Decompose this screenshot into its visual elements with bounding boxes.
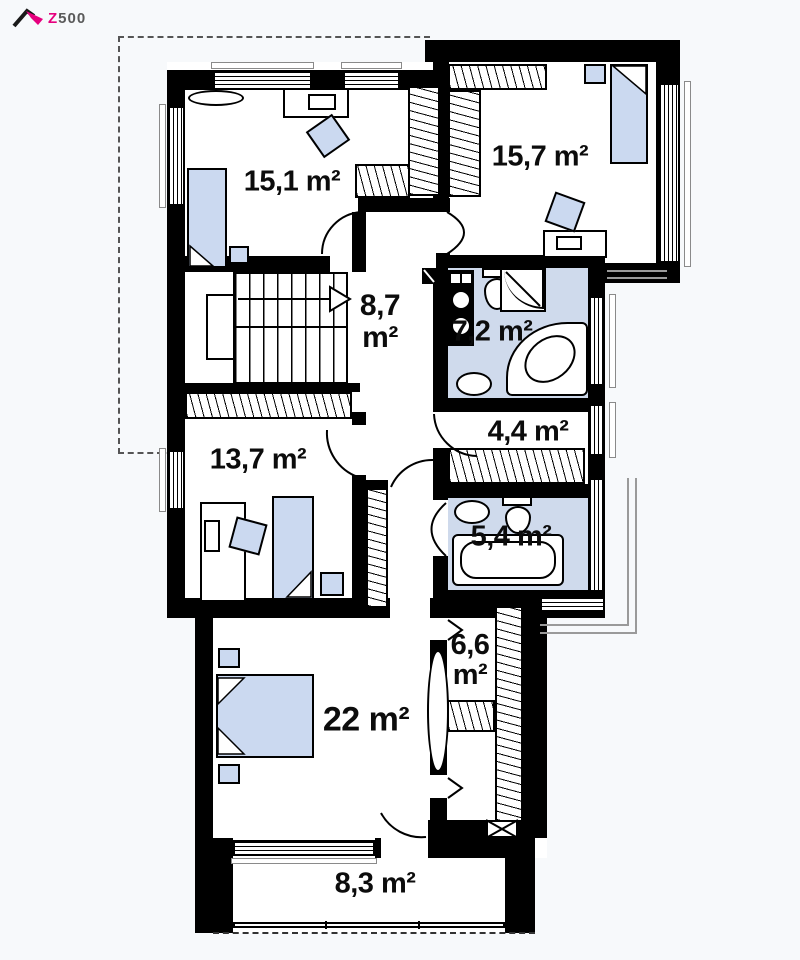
stairs-landing-rail <box>206 294 236 360</box>
computer <box>204 520 220 552</box>
wall <box>195 600 213 858</box>
railing-post <box>325 921 327 929</box>
room-area-label: 8,7 m² <box>338 290 422 353</box>
stairs-upper-flight <box>233 272 348 328</box>
nightstand <box>218 764 240 784</box>
window <box>588 404 605 456</box>
wall <box>433 268 448 398</box>
room-area-label: 7,2 m² <box>452 316 533 349</box>
washer-control <box>462 274 471 283</box>
roof-outline-dashed-left <box>118 36 120 454</box>
bed-single <box>272 496 314 600</box>
wall <box>167 383 360 392</box>
window-sill <box>159 104 166 208</box>
wardrobe <box>366 488 388 608</box>
washer-door <box>453 292 469 308</box>
small-window <box>486 820 518 838</box>
window <box>343 70 400 90</box>
balcony-edge-dashed <box>213 932 535 934</box>
window-sill <box>609 402 616 458</box>
hall-area-value: 8,7 <box>338 290 422 322</box>
sink <box>456 372 492 396</box>
nightstand <box>584 64 606 84</box>
wall <box>352 212 366 272</box>
room-area-label: 22 m² <box>323 701 409 740</box>
wardrobe <box>448 90 481 197</box>
laptop <box>556 236 582 250</box>
nightstand <box>218 648 240 668</box>
wardrobe <box>447 700 495 732</box>
closet-area-unit: m² <box>433 660 507 690</box>
wall <box>195 838 233 933</box>
room-area-label: 8,3 m² <box>335 868 416 901</box>
window-sill <box>341 62 402 69</box>
nightstand <box>229 246 249 264</box>
wall <box>425 40 680 62</box>
window <box>167 450 185 510</box>
bed-single <box>187 168 227 268</box>
window-sill <box>607 270 667 272</box>
room-area-label: 4,4 m² <box>488 416 569 449</box>
window-sill <box>684 81 691 267</box>
floorplan-canvas: Z500 <box>0 0 800 960</box>
stairs-lower-flight <box>233 326 348 384</box>
window <box>213 70 312 90</box>
window <box>658 83 680 263</box>
radiator <box>188 90 244 106</box>
wardrobe <box>408 86 440 196</box>
wardrobe <box>448 64 547 90</box>
roof-outline-dashed-top <box>118 36 430 38</box>
wall <box>430 598 448 618</box>
z500-logo: Z500 <box>12 6 86 30</box>
room-area-label: 5,4 m² <box>471 521 552 554</box>
room-area-label: 15,7 m² <box>492 141 588 174</box>
window <box>233 840 375 856</box>
window-sill <box>609 294 616 388</box>
wall <box>352 475 366 608</box>
room-area-label: 13,7 m² <box>210 444 306 477</box>
wall <box>505 843 535 933</box>
window-sill <box>211 62 314 69</box>
laptop <box>308 94 336 110</box>
roof-logo-icon <box>12 6 46 30</box>
window <box>588 296 605 386</box>
railing-post <box>418 921 420 929</box>
logo-z: Z <box>48 10 58 27</box>
wall <box>352 412 366 425</box>
window-sill <box>231 858 377 864</box>
wardrobe <box>355 164 410 198</box>
window-sill <box>159 448 166 512</box>
washer-control <box>451 274 460 283</box>
wall <box>358 198 450 212</box>
wall <box>433 398 605 412</box>
wall <box>375 838 381 858</box>
wardrobe <box>448 448 585 484</box>
logo-text: Z500 <box>48 10 86 27</box>
wardrobe <box>185 392 352 419</box>
bed-double <box>216 674 314 758</box>
hall-area-unit: m² <box>338 322 422 354</box>
toilet-tank <box>502 496 532 506</box>
bed-single <box>610 64 648 164</box>
logo-suffix: 500 <box>58 10 86 27</box>
window-sill <box>607 277 667 279</box>
balcony-railing <box>233 922 505 928</box>
room-area-label: 15,1 m² <box>244 166 340 199</box>
chimney-vent <box>422 268 436 284</box>
room-area-label: 6,6 m² <box>433 630 507 691</box>
window <box>167 106 185 206</box>
closet-area-value: 6,6 <box>433 630 507 660</box>
nightstand <box>320 572 344 596</box>
